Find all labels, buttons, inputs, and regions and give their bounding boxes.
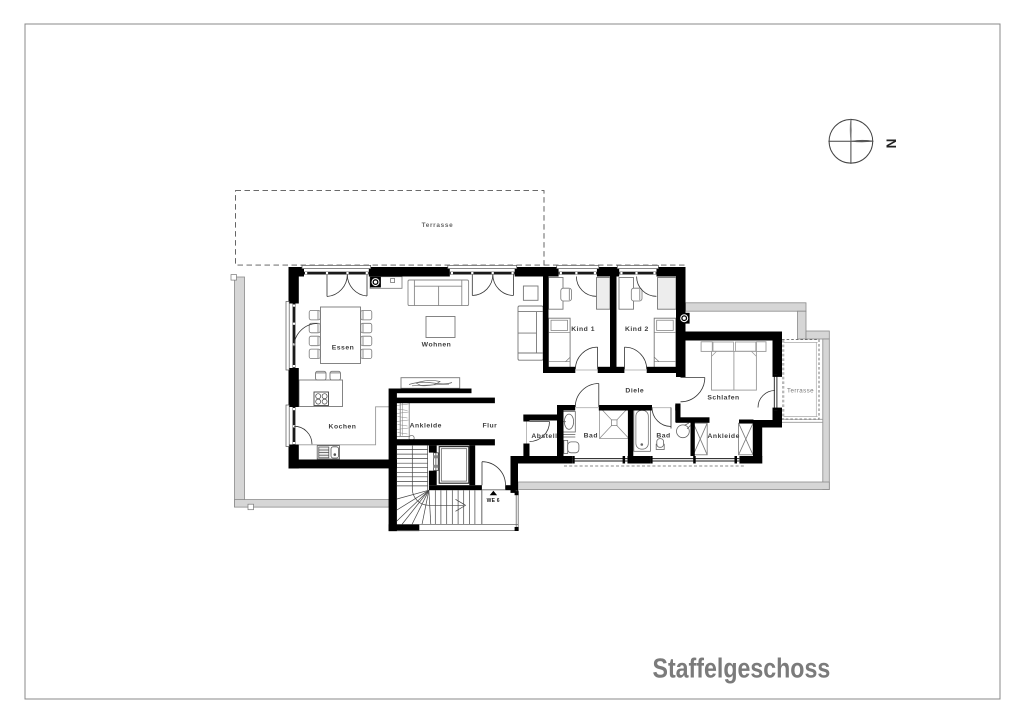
svg-text:Abstell: Abstell — [531, 433, 557, 440]
svg-text:Diele: Diele — [625, 388, 644, 395]
svg-text:Staffelgeschoss: Staffelgeschoss — [653, 654, 831, 684]
svg-text:Kind 1: Kind 1 — [571, 326, 595, 333]
svg-text:WE 6: WE 6 — [487, 498, 500, 504]
svg-text:Ankleide: Ankleide — [708, 433, 740, 440]
svg-text:Kochen: Kochen — [329, 424, 357, 431]
svg-text:Schlafen: Schlafen — [707, 395, 739, 402]
svg-text:Ankleide: Ankleide — [410, 422, 442, 429]
svg-text:Kind 2: Kind 2 — [625, 326, 649, 333]
svg-text:Flur: Flur — [482, 422, 497, 429]
svg-text:Bad: Bad — [584, 433, 598, 440]
svg-text:Wohnen: Wohnen — [422, 342, 452, 349]
svg-text:N: N — [884, 139, 899, 149]
svg-text:Bad: Bad — [656, 433, 670, 440]
svg-text:Terrasse: Terrasse — [422, 222, 454, 229]
svg-text:Essen: Essen — [332, 345, 355, 352]
svg-text:Terrasse: Terrasse — [787, 387, 814, 394]
